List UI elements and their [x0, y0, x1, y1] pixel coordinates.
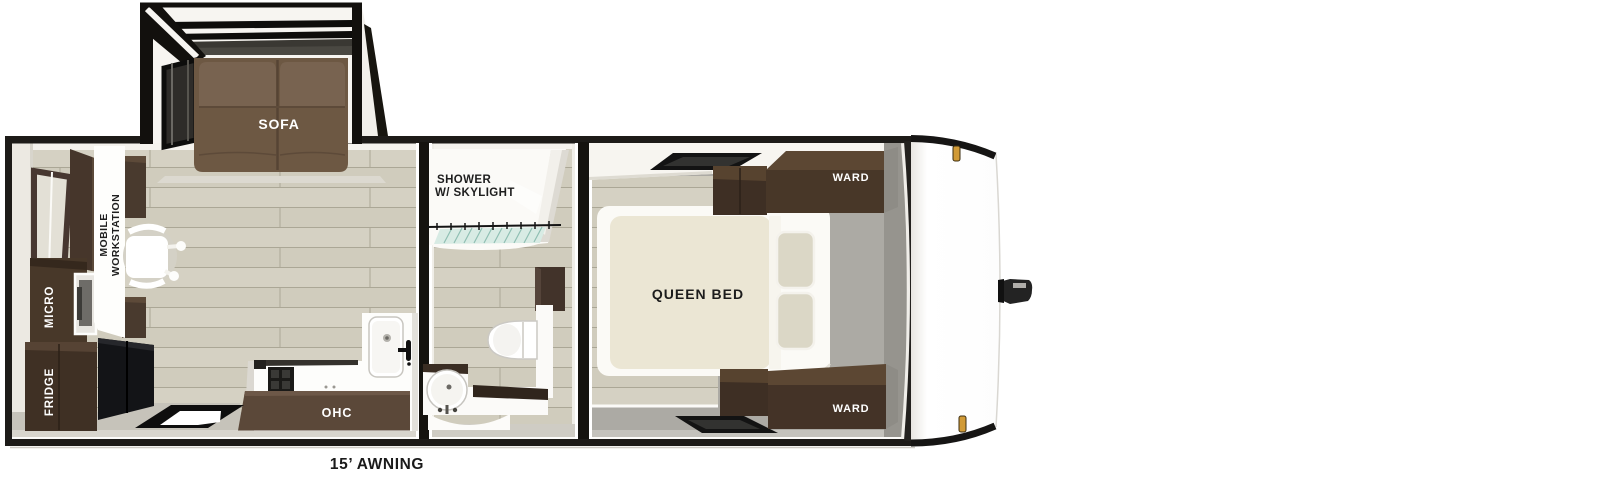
svg-text:15’ AWNING: 15’ AWNING [330, 456, 424, 473]
svg-text:MICRO: MICRO [44, 286, 56, 328]
svg-text:FRIDGE: FRIDGE [44, 368, 56, 416]
svg-text:SHOWER: SHOWER [437, 174, 491, 186]
svg-text:QUEEN BED: QUEEN BED [652, 286, 744, 302]
svg-text:WARD: WARD [833, 403, 870, 415]
svg-text:MOBILE: MOBILE [98, 213, 110, 256]
svg-text:W/ SKYLIGHT: W/ SKYLIGHT [435, 187, 515, 199]
svg-text:WARD: WARD [833, 172, 870, 184]
svg-text:WORKSTATION: WORKSTATION [110, 194, 122, 276]
svg-text:SOFA: SOFA [258, 116, 299, 132]
svg-text:OHC: OHC [322, 406, 353, 420]
